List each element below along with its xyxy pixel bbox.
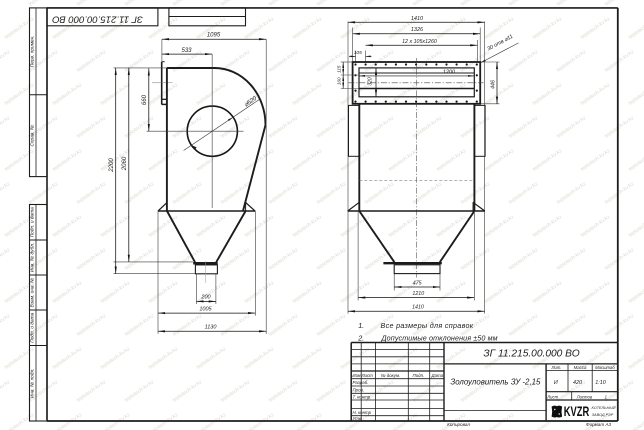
- svg-text:1095: 1095: [207, 32, 221, 38]
- svg-text:Лист: Лист: [546, 394, 558, 399]
- svg-text:Подп. и дата: Подп. и дата: [30, 207, 36, 237]
- svg-text:533: 533: [181, 48, 192, 54]
- svg-text:Разраб.: Разраб.: [353, 380, 369, 385]
- svg-text:КОТЕЛЬНЫЙ: КОТЕЛЬНЫЙ: [592, 406, 616, 410]
- svg-text:Пров.: Пров.: [353, 388, 365, 393]
- svg-text:Золоуловитель ЗУ -2,15: Золоуловитель ЗУ -2,15: [450, 378, 541, 387]
- svg-text:446: 446: [491, 80, 497, 89]
- svg-text:Дата: Дата: [431, 373, 444, 378]
- svg-text:№ докум.: № докум.: [381, 373, 400, 378]
- svg-text:Н. контр: Н. контр: [353, 410, 372, 415]
- svg-text:660: 660: [141, 94, 148, 105]
- svg-text:105: 105: [354, 50, 362, 56]
- svg-text:2.: 2.: [357, 333, 364, 342]
- svg-text:320: 320: [367, 77, 373, 86]
- svg-text:1005: 1005: [199, 307, 212, 313]
- svg-text:2200: 2200: [108, 158, 115, 173]
- svg-text:160: 160: [337, 77, 342, 85]
- svg-text:Листов: Листов: [576, 394, 593, 399]
- svg-text:Инв. № подл.: Инв. № подл.: [30, 368, 36, 398]
- svg-text:Подп. и дата: Подп. и дата: [30, 312, 36, 342]
- svg-text:ЗГ 11.215.00.000 ВО: ЗГ 11.215.00.000 ВО: [52, 14, 143, 25]
- svg-text:12 х 105х1260: 12 х 105х1260: [402, 39, 437, 45]
- svg-text:1210: 1210: [412, 291, 424, 297]
- svg-text:Перв. примен.: Перв. примен.: [30, 35, 36, 67]
- svg-text:KVZR: KVZR: [564, 404, 590, 419]
- svg-text:200: 200: [200, 295, 211, 301]
- svg-text:Лит.: Лит.: [550, 365, 561, 370]
- svg-text:Лист: Лист: [361, 373, 374, 378]
- svg-text:Масса: Масса: [574, 365, 587, 370]
- svg-text:1: 1: [605, 394, 607, 399]
- svg-text:ЗАВОД РЭР: ЗАВОД РЭР: [592, 413, 614, 417]
- svg-text:Допустимые отклонения ±50 м: Допустимые отклонения ±50 мм: [381, 333, 498, 342]
- svg-text:ЗГ 11.215.00.000 ВО: ЗГ 11.215.00.000 ВО: [483, 348, 579, 359]
- svg-text:Инв. № дубл.: Инв. № дубл.: [30, 243, 36, 273]
- svg-text:Взам. инв. №: Взам. инв. №: [30, 278, 36, 308]
- svg-text:Справ. №: Справ. №: [30, 125, 36, 147]
- svg-text:Масштаб: Масштаб: [595, 365, 615, 370]
- svg-text:2060: 2060: [121, 156, 128, 171]
- svg-text:Подп.: Подп.: [413, 373, 425, 378]
- svg-text:1130: 1130: [205, 325, 218, 331]
- svg-text:Все размеры для справок: Все размеры для справок: [381, 321, 474, 330]
- svg-text:1410: 1410: [411, 16, 424, 22]
- svg-text:Изм: Изм: [352, 373, 360, 378]
- svg-text:475: 475: [413, 280, 422, 286]
- svg-text:1:10: 1:10: [595, 380, 606, 386]
- svg-text:1.: 1.: [358, 321, 364, 330]
- svg-text:115: 115: [337, 65, 342, 73]
- svg-text:1200: 1200: [443, 70, 456, 76]
- svg-text:И: И: [554, 380, 558, 386]
- svg-text:1326: 1326: [411, 27, 424, 33]
- svg-text:Утв.: Утв.: [353, 416, 363, 421]
- svg-text:Копировал: Копировал: [447, 422, 470, 427]
- svg-text:1410: 1410: [412, 305, 424, 311]
- svg-text:Т. контр: Т. контр: [353, 395, 371, 400]
- svg-text:Формат А3: Формат А3: [586, 422, 612, 427]
- svg-text:420: 420: [573, 380, 582, 386]
